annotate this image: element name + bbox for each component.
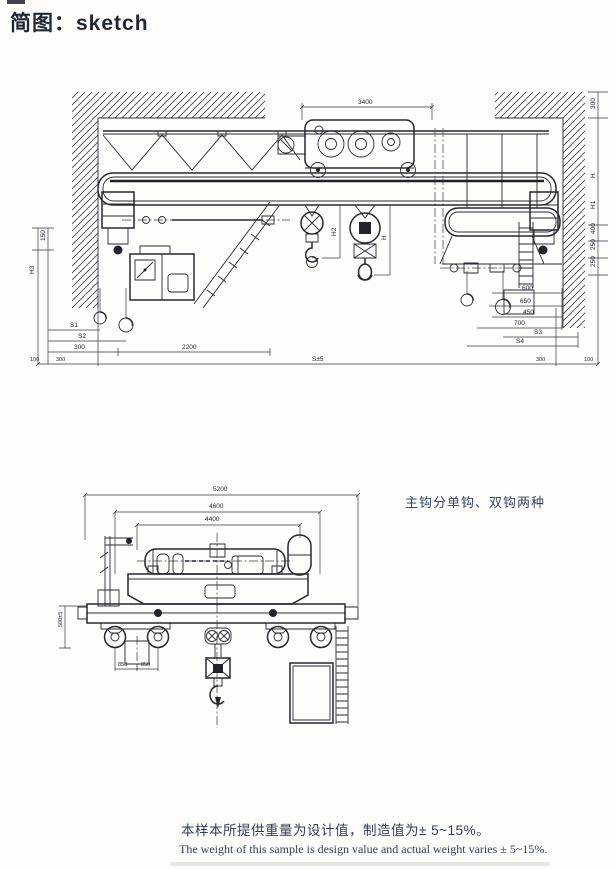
dim-label-250a: 250 <box>590 239 597 250</box>
scan-smudge <box>170 862 550 866</box>
dim-buffer-height: 500±5 <box>58 606 87 648</box>
hoist-motor <box>225 556 264 574</box>
hoist-drum <box>137 549 293 574</box>
far-girder <box>440 208 562 264</box>
dim-label-overall: 5200 <box>213 486 228 493</box>
dim-label-2200: 2200 <box>182 344 197 351</box>
dim-label-600: 600 <box>522 285 533 292</box>
right-edge-dims: 300 H H1 400 250 250 <box>588 92 608 364</box>
dim-label-inner: 4400 <box>205 516 220 523</box>
dim-label-700: 700 <box>514 320 525 327</box>
double-hook-block <box>350 205 380 280</box>
hook-hanger-top <box>210 544 225 557</box>
main-girder <box>98 173 556 205</box>
dim-label-s2: S2 <box>78 333 86 340</box>
dim-label-span: S±5 <box>312 356 324 363</box>
right-wall-hatch <box>495 92 585 328</box>
single-hook-block <box>301 205 323 268</box>
walkway-rail <box>103 131 549 134</box>
dim-label-edge-r2: 100 <box>584 357 593 363</box>
crab-trolley <box>278 120 416 178</box>
dim-label-h1: H1 <box>590 200 597 209</box>
drawing2-end-view: 5200 4600 4400 <box>45 478 395 763</box>
dim-wheel-spacing: 850 850 <box>115 648 158 671</box>
right-bogie <box>266 623 335 648</box>
dim-label-850b: 850 <box>141 662 150 668</box>
drive-shaft-left <box>122 216 290 224</box>
scan-artifact <box>7 0 25 4</box>
resistor-tank <box>288 535 311 575</box>
right-panel <box>290 663 333 723</box>
dim-label-300bl: 300 <box>74 344 85 351</box>
side-ladder <box>336 626 348 724</box>
dim-trolley-wheelbase: 3400 <box>300 99 434 120</box>
dim-label-edge-l2: 300 <box>56 357 65 363</box>
top-dim-lines: 5200 4600 4400 <box>83 486 360 606</box>
electrical-cabinet <box>130 246 194 300</box>
dim-label-wheelbase: 3400 <box>358 99 373 106</box>
left-edge-dims: 150 H3 <box>29 228 54 364</box>
dim-label-s4: S4 <box>516 338 524 345</box>
dim-label-250b: 250 <box>590 256 597 267</box>
dim-label-h3: H3 <box>29 265 36 274</box>
bottom-left-hooks <box>94 288 133 332</box>
dim-label-400: 400 <box>590 223 597 234</box>
drive-shaft-right <box>440 263 532 273</box>
left-bogie <box>101 623 170 670</box>
dim-label-850a: 850 <box>118 662 127 668</box>
hook-type-note: 主钩分单钩、双钩两种 <box>405 492 545 511</box>
dim-label-mid: 4600 <box>209 503 224 510</box>
weight-note-en: The weight of this sample is design valu… <box>179 842 547 857</box>
dim-label-h: H <box>381 235 388 240</box>
suspension-truss <box>103 131 300 170</box>
document-page: 简图：sketch <box>0 0 616 869</box>
dim-label-h-edge: H <box>590 173 597 178</box>
dim-label-150: 150 <box>40 230 47 241</box>
main-hook-assembly <box>205 628 231 708</box>
page-title: 简图：sketch <box>10 7 149 37</box>
drawing1-front-elevation: 3400 H2 H <box>22 78 616 388</box>
dim-label-650: 650 <box>520 298 531 305</box>
weight-note-zh: 本样本所提供重量为设计值，制造值为± 5~15%。 <box>181 819 490 839</box>
dim-label-s1: S1 <box>70 322 78 329</box>
dim-label-edge-l1: 100 <box>30 357 39 363</box>
dim-label-s3: S3 <box>534 329 542 336</box>
dim-label-edge-r1: 300 <box>536 357 545 363</box>
railing-posts <box>467 134 537 208</box>
hook-travel-centerlines <box>435 128 443 264</box>
right-dim-stack: 600 650 450 700 S3 S4 <box>467 285 578 348</box>
dim-label-500: 500±5 <box>58 612 64 627</box>
dim-label-450: 450 <box>523 309 534 316</box>
dim-label-h2: H2 <box>331 227 338 236</box>
access-stairs <box>194 202 279 308</box>
dim-label-clearance: 300 <box>590 98 597 109</box>
